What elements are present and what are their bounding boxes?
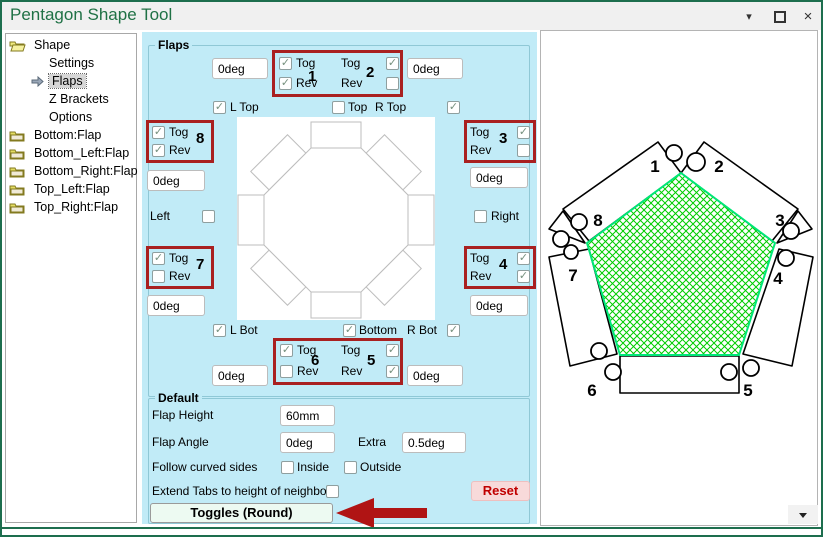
top-label: Top: [348, 100, 367, 114]
flap2-rev-label: Rev: [341, 76, 362, 90]
folder-icon: [9, 183, 25, 199]
flap3-angle-input[interactable]: [470, 167, 528, 188]
flap5-rev-checkbox[interactable]: ✓: [386, 365, 399, 378]
reset-button[interactable]: Reset: [471, 481, 530, 501]
l-top-checkbox[interactable]: ✓: [213, 101, 226, 114]
flap5-tog-checkbox[interactable]: ✓: [386, 344, 399, 357]
pentagon-flap2-number: 2: [714, 157, 723, 176]
flap7-rev-checkbox[interactable]: [152, 270, 165, 283]
tree-item-label: Bottom_Right:Flap: [34, 164, 138, 178]
pentagon-flap7-number: 7: [568, 266, 577, 285]
inside-label: Inside: [297, 460, 329, 474]
flap3-rev-checkbox[interactable]: [517, 144, 530, 157]
flap8-number: 8: [196, 130, 204, 147]
pentagon-flap1-number: 1: [650, 157, 659, 176]
l-bot-checkbox[interactable]: ✓: [213, 324, 226, 337]
tree-item-label: Shape: [34, 38, 70, 52]
extra-input[interactable]: [402, 432, 466, 453]
arrow-right-icon: [31, 76, 44, 90]
flap8-angle-input[interactable]: [147, 170, 205, 191]
flap5-rev-label: Rev: [341, 364, 362, 378]
flap4-rev-label: Rev: [470, 269, 491, 283]
folder-icon: [9, 165, 25, 181]
flap4-angle-input[interactable]: [470, 295, 528, 316]
flap8-tog-label: Tog: [169, 125, 188, 139]
pentagon-flap4-number: 4: [773, 269, 783, 288]
flap7-tog-checkbox[interactable]: ✓: [152, 252, 165, 265]
r-bot-label: R Bot: [407, 323, 437, 337]
flap7-angle-input[interactable]: [147, 295, 205, 316]
tree-item-label-selected: Flaps: [49, 74, 86, 88]
flap3-rev-label: Rev: [470, 143, 491, 157]
flap2-number: 2: [366, 64, 374, 81]
flap4-number: 4: [499, 256, 507, 273]
outside-label: Outside: [360, 460, 401, 474]
flap1-angle-input[interactable]: [212, 58, 268, 79]
flap2-angle-input[interactable]: [407, 58, 463, 79]
r-top-checkbox[interactable]: ✓: [447, 101, 460, 114]
inside-checkbox[interactable]: [281, 461, 294, 474]
tree-item-label: Top_Left:Flap: [34, 182, 110, 196]
title-bar: Pentagon Shape Tool ▾ ×: [2, 2, 821, 30]
follow-curved-sides-label: Follow curved sides: [152, 460, 257, 474]
outside-checkbox[interactable]: [344, 461, 357, 474]
extend-tabs-label: Extend Tabs to height of neighbour: [152, 484, 337, 498]
shape-tree: Shape Settings Flaps Z Brackets Options …: [5, 33, 137, 523]
tree-item-label: Z Brackets: [49, 92, 109, 106]
r-top-label: R Top: [375, 100, 406, 114]
bottom-label: Bottom: [359, 323, 397, 337]
pentagon-drawing: 1 2 3 4 5 6 7 8: [541, 31, 817, 525]
folder-icon: [9, 129, 25, 145]
r-bot-checkbox[interactable]: ✓: [447, 324, 460, 337]
flap8-rev-label: Rev: [169, 143, 190, 157]
bottom-checkbox[interactable]: ✓: [343, 324, 356, 337]
flaps-group-label: Flaps: [155, 38, 192, 52]
flap4-tog-label: Tog: [470, 251, 489, 265]
folder-icon: [9, 201, 25, 217]
left-checkbox[interactable]: [202, 210, 215, 223]
flap6-number: 6: [311, 352, 319, 369]
flap-position-diagram[interactable]: [237, 117, 435, 320]
flap8-rev-checkbox[interactable]: ✓: [152, 144, 165, 157]
folder-icon: [9, 147, 25, 163]
pentagon-preview-panel: 1 2 3 4 5 6 7 8: [540, 30, 818, 526]
default-group-label: Default: [155, 391, 202, 405]
pentagon-flap5-number: 5: [743, 381, 752, 400]
tree-item-label: Settings: [49, 56, 94, 70]
pentagon-flap6-number: 6: [587, 381, 596, 400]
flap6-tog-checkbox[interactable]: ✓: [280, 344, 293, 357]
right-label: Right: [491, 209, 519, 223]
flap4-tog-checkbox[interactable]: ✓: [517, 252, 530, 265]
flap3-number: 3: [499, 130, 507, 147]
red-arrow-pointer: [336, 496, 428, 530]
flap4-rev-checkbox[interactable]: ✓: [517, 270, 530, 283]
maximize-icon[interactable]: [774, 11, 786, 23]
flap7-number: 7: [196, 256, 204, 273]
toggles-round-button[interactable]: Toggles (Round): [150, 503, 333, 523]
flap1-rev-checkbox[interactable]: ✓: [279, 77, 292, 90]
pentagon-flap8-number: 8: [593, 211, 602, 230]
tree-item-label: Top_Right:Flap: [34, 200, 118, 214]
flap6-angle-input[interactable]: [212, 365, 268, 386]
flap2-rev-checkbox[interactable]: [386, 77, 399, 90]
flap1-tog-checkbox[interactable]: ✓: [279, 57, 292, 70]
l-top-label: L Top: [230, 100, 259, 114]
flap5-number: 5: [367, 352, 375, 369]
flap6-rev-checkbox[interactable]: [280, 365, 293, 378]
tree-item-label: Bottom_Left:Flap: [34, 146, 129, 160]
flap-height-label: Flap Height: [152, 408, 213, 422]
tree-item-label: Options: [49, 110, 92, 124]
folder-open-icon: [9, 39, 26, 55]
tree-item-label: Bottom:Flap: [34, 128, 101, 142]
pentagon-flap3-number: 3: [775, 211, 784, 230]
app-window: Pentagon Shape Tool ▾ × Shape Settings F…: [0, 0, 823, 537]
minimize-icon[interactable]: ▾: [739, 10, 759, 30]
flap3-tog-checkbox[interactable]: ✓: [517, 126, 530, 139]
flap7-tog-label: Tog: [169, 251, 188, 265]
l-bot-label: L Bot: [230, 323, 258, 337]
flap8-tog-checkbox[interactable]: ✓: [152, 126, 165, 139]
window-bottom-divider: [0, 527, 823, 529]
extra-label: Extra: [358, 435, 386, 449]
flap3-tog-label: Tog: [470, 125, 489, 139]
right-checkbox[interactable]: [474, 210, 487, 223]
scroll-down-icon: [799, 513, 807, 522]
octagon-diagram-svg: [237, 117, 435, 320]
top-checkbox[interactable]: [332, 101, 345, 114]
left-label: Left: [150, 209, 170, 223]
flap5-angle-input[interactable]: [407, 365, 463, 386]
flap2-tog-label: Tog: [341, 56, 360, 70]
flap1-number: 1: [308, 68, 316, 85]
flap-angle-input[interactable]: [280, 432, 335, 453]
flap-angle-label: Flap Angle: [152, 435, 209, 449]
flap5-tog-label: Tog: [341, 343, 360, 357]
close-icon[interactable]: ×: [798, 8, 818, 28]
flap2-tog-checkbox[interactable]: ✓: [386, 57, 399, 70]
flap-height-input[interactable]: [280, 405, 335, 426]
scroll-down-button[interactable]: [788, 505, 818, 524]
window-title: Pentagon Shape Tool: [10, 5, 172, 25]
flap7-rev-label: Rev: [169, 269, 190, 283]
